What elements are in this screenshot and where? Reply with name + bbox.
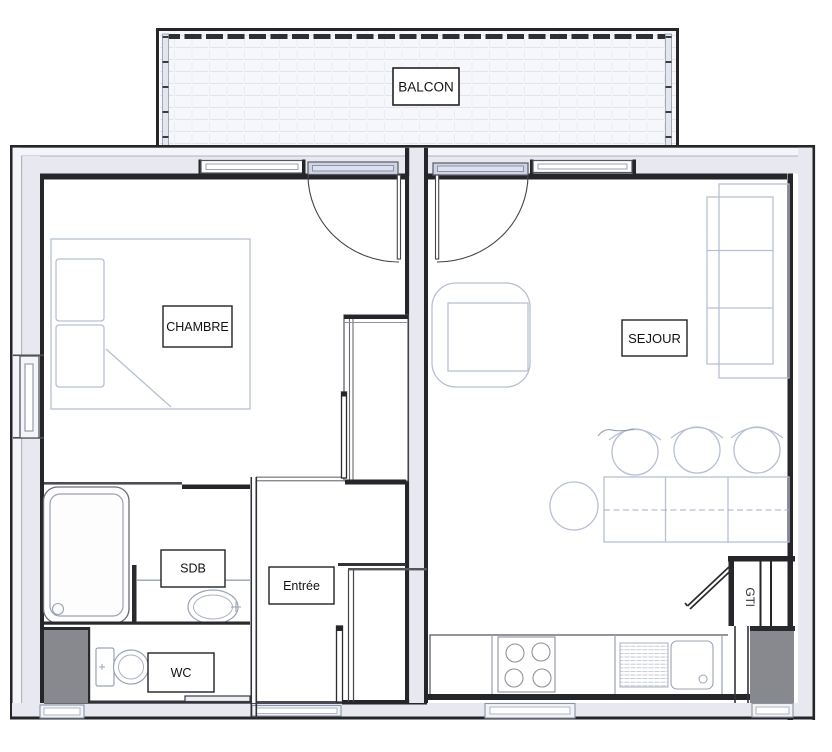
svg-text:SDB: SDB: [180, 562, 206, 576]
svg-text:SEJOUR: SEJOUR: [628, 331, 681, 346]
svg-text:GTl: GTl: [743, 587, 757, 606]
svg-text:WC: WC: [171, 666, 192, 680]
svg-text:BALCON: BALCON: [398, 80, 454, 95]
svg-text:Entrée: Entrée: [283, 579, 320, 593]
svg-text:CHAMBRE: CHAMBRE: [166, 320, 229, 334]
